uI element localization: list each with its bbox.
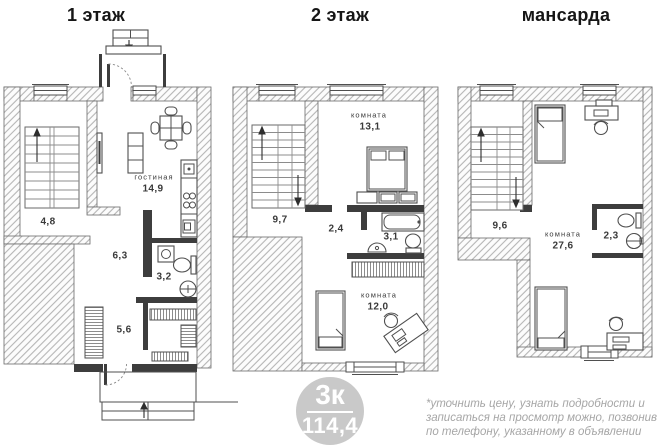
room-label-f1-living-area: 14,9 <box>142 184 163 195</box>
desk-icon-bottom <box>607 333 643 350</box>
tv-stand-icon <box>97 133 102 173</box>
room-label-f2-bathroom: 3,1 <box>383 232 398 243</box>
room-label-f1-hall: 6,3 <box>112 251 127 262</box>
door-arc <box>106 364 127 385</box>
bathtub-icon <box>382 213 424 231</box>
entry-canopy <box>106 30 161 54</box>
chair-icon-top <box>594 121 608 134</box>
room-label-attic-room-name: комната <box>545 230 581 239</box>
sink-icon <box>627 234 644 249</box>
single-bed-icon <box>316 291 345 350</box>
room-label-attic-bathroom: 2,3 <box>603 231 618 242</box>
washing-machine-icon <box>158 246 174 262</box>
disclaimer-line: *уточнить цену, узнать подробности и <box>426 397 668 411</box>
kitchen-unit-icon <box>181 160 197 237</box>
dining-table-icon <box>151 107 191 149</box>
attic-plan <box>458 85 652 361</box>
badge-rooms-count: 3к <box>296 380 364 410</box>
single-bed-icon-bottom <box>535 287 567 350</box>
floor1-plan <box>4 30 238 420</box>
floor1-staircase <box>25 127 79 208</box>
sink-icon <box>180 281 196 297</box>
room-label-f2-bedroom-name: комната <box>351 111 387 120</box>
room-label-f2-stair-hall: 9,7 <box>272 215 287 226</box>
room-label-attic-stair-hall: 9,6 <box>492 221 507 232</box>
door-leaf <box>107 64 110 87</box>
wardrobe-icons <box>85 307 196 361</box>
room-label-f2-room-area: 12,0 <box>367 302 388 313</box>
room-label-f2-bedroom-area: 13,1 <box>359 122 380 133</box>
room-label-attic-room-area: 27,6 <box>552 241 573 252</box>
room-label-f1-dressing: 5,6 <box>116 325 131 336</box>
entry-door-bottom <box>104 364 127 385</box>
disclaimer-line: по телефону, указанному в объявлении <box>426 425 668 439</box>
room-label-f1-stair-hall: 4,8 <box>40 217 55 228</box>
room-label-f2-room-name: комната <box>361 291 397 300</box>
badge-total-area: 114,4 <box>296 414 364 438</box>
disclaimer-note: *уточнить цену, узнать подробности и зап… <box>426 397 668 439</box>
chair-icon-bottom <box>609 317 623 330</box>
wardrobe-icon <box>352 262 424 277</box>
floor2-staircase <box>252 125 305 208</box>
toilet-icon <box>174 256 197 274</box>
room-label-f1-living-name: гостиная <box>134 173 173 182</box>
entry-steps <box>100 372 238 420</box>
sink-icon <box>368 243 386 252</box>
floor-plan-page: 1 этаж 2 этаж мансарда <box>0 0 668 448</box>
sofa-icon <box>128 133 143 173</box>
room-label-f1-bathroom: 3,2 <box>156 272 171 283</box>
attic-interior-walls <box>520 204 643 258</box>
total-area-badge: 3к 114,4 <box>296 377 364 445</box>
chair-icon <box>384 313 398 327</box>
door-leaf <box>104 364 107 385</box>
desk-icon-top <box>585 100 618 120</box>
disclaimer-line: записаться на просмотр можно, позвонив <box>426 411 668 425</box>
room-label-f2-hall: 2,4 <box>328 224 343 235</box>
toilet-icon <box>618 213 641 228</box>
door-arc <box>109 64 132 87</box>
toilet-icon <box>406 234 422 253</box>
double-bed-icon <box>357 147 417 203</box>
entry-porch <box>99 54 166 87</box>
attic-staircase <box>471 127 523 210</box>
single-bed-icon-top <box>535 105 565 163</box>
